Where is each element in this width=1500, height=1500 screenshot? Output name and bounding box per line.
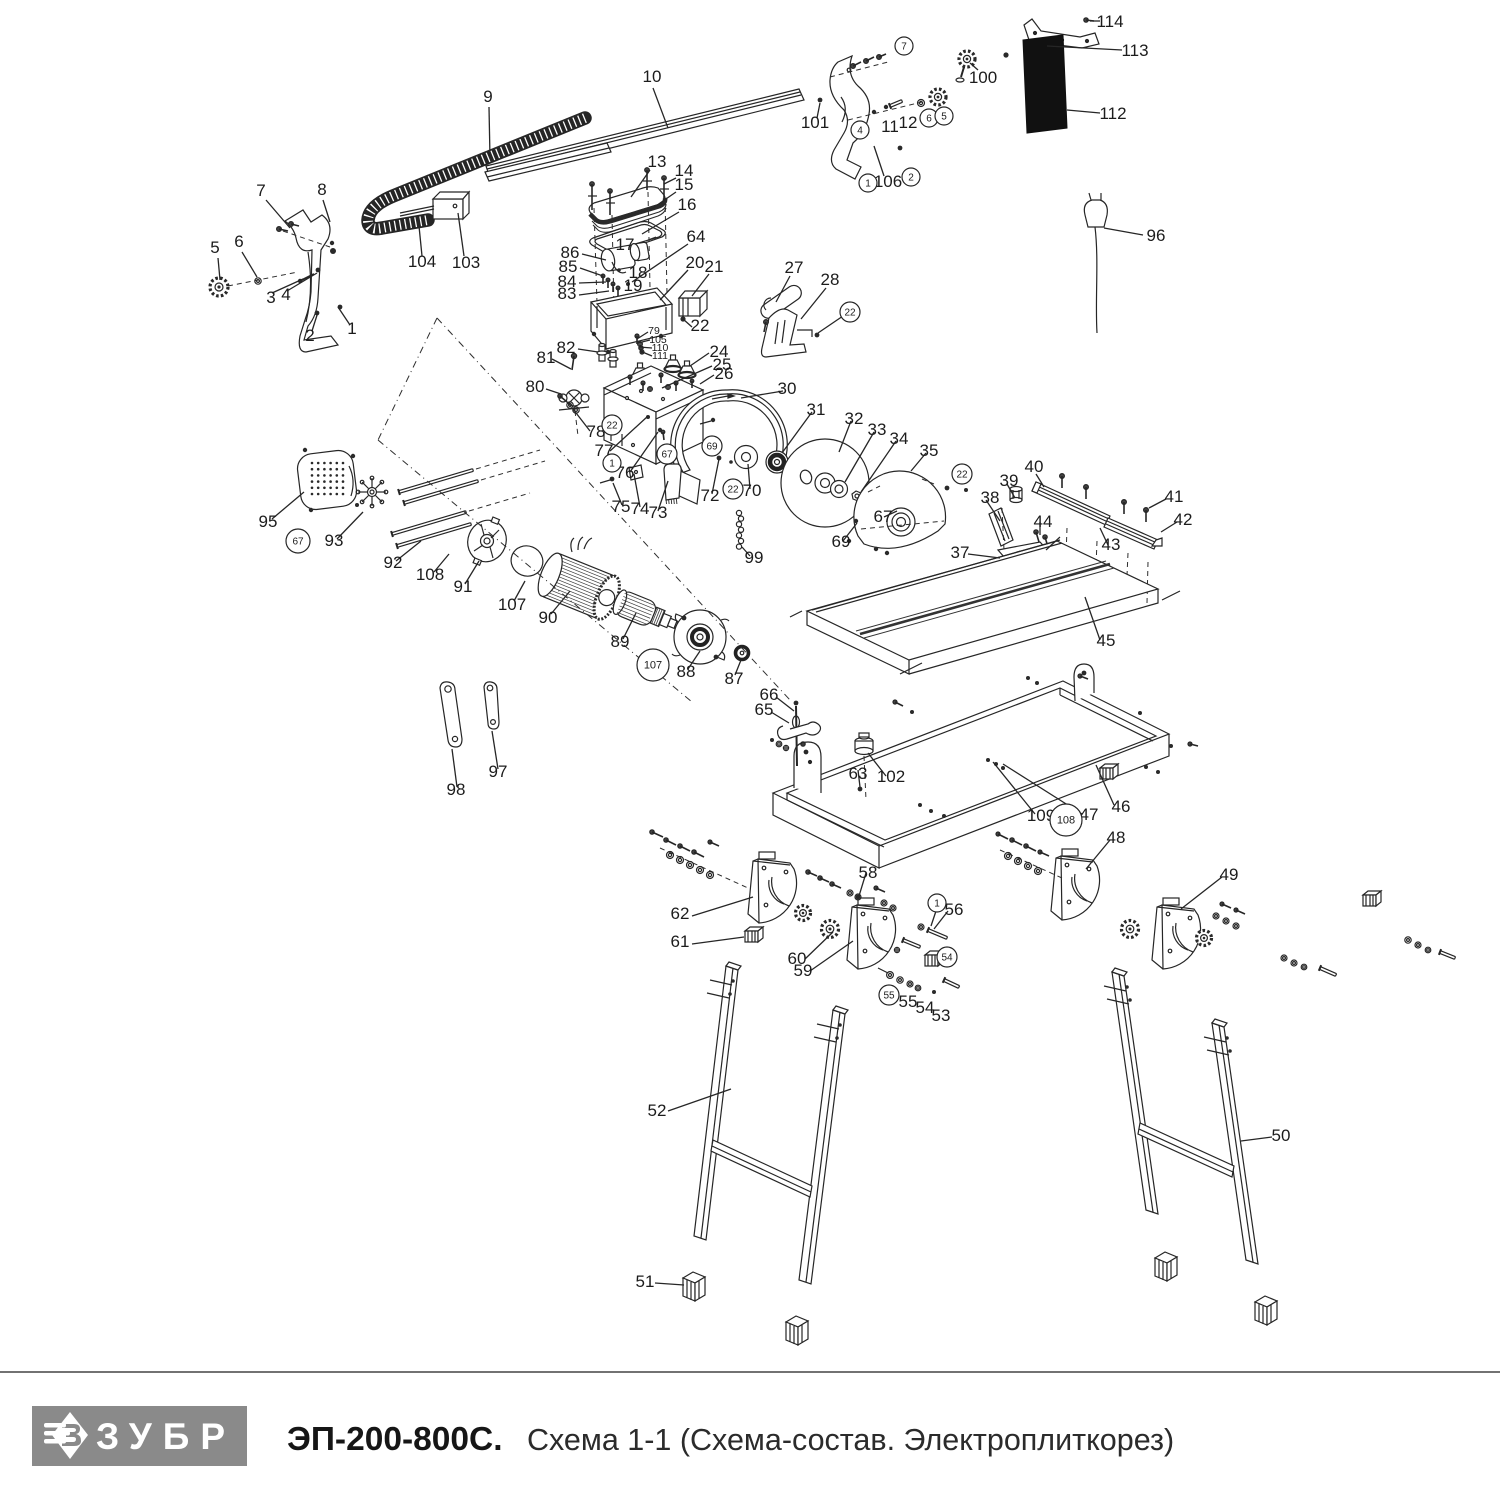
- svg-text:55: 55: [899, 992, 918, 1011]
- svg-text:67: 67: [874, 507, 893, 526]
- svg-text:17: 17: [616, 235, 635, 254]
- svg-text:114: 114: [1096, 12, 1123, 31]
- svg-text:46: 46: [1112, 797, 1131, 816]
- svg-text:43: 43: [1102, 535, 1121, 554]
- svg-text:58: 58: [859, 863, 878, 882]
- svg-text:107: 107: [644, 660, 662, 672]
- svg-text:103: 103: [452, 253, 480, 272]
- svg-text:74: 74: [631, 499, 650, 518]
- svg-text:87: 87: [725, 669, 744, 688]
- svg-text:69: 69: [706, 442, 718, 453]
- svg-text:49: 49: [1220, 865, 1239, 884]
- svg-text:97: 97: [489, 762, 508, 781]
- svg-text:39: 39: [1000, 471, 1019, 490]
- svg-text:95: 95: [259, 512, 278, 531]
- svg-text:90: 90: [539, 608, 558, 627]
- svg-text:13: 13: [648, 152, 667, 171]
- svg-text:ЭП-200-800С.: ЭП-200-800С.: [287, 1421, 503, 1458]
- svg-text:2: 2: [908, 173, 914, 184]
- svg-text:19: 19: [624, 276, 643, 295]
- svg-text:6: 6: [234, 232, 243, 251]
- svg-text:63: 63: [849, 764, 868, 783]
- svg-text:8: 8: [317, 180, 326, 199]
- svg-text:2: 2: [305, 326, 314, 345]
- svg-text:67: 67: [661, 450, 673, 461]
- svg-text:82: 82: [557, 338, 576, 357]
- svg-text:99: 99: [745, 548, 764, 567]
- svg-text:56: 56: [945, 900, 964, 919]
- svg-text:107: 107: [498, 595, 526, 614]
- svg-text:88: 88: [677, 662, 696, 681]
- svg-text:108: 108: [1057, 815, 1075, 827]
- svg-text:1: 1: [865, 179, 871, 190]
- svg-text:89: 89: [611, 632, 630, 651]
- svg-text:66: 66: [760, 685, 779, 704]
- svg-text:7: 7: [901, 42, 907, 53]
- svg-text:22: 22: [606, 421, 618, 432]
- svg-text:64: 64: [687, 227, 706, 246]
- svg-text:16: 16: [678, 195, 697, 214]
- svg-text:101: 101: [801, 113, 829, 132]
- svg-text:40: 40: [1025, 457, 1044, 476]
- svg-text:38: 38: [981, 488, 1000, 507]
- svg-text:31: 31: [807, 400, 826, 419]
- svg-text:45: 45: [1097, 631, 1116, 650]
- svg-text:113: 113: [1121, 41, 1148, 60]
- svg-text:72: 72: [701, 486, 720, 505]
- svg-text:42: 42: [1174, 510, 1193, 529]
- svg-text:27: 27: [785, 258, 804, 277]
- svg-text:ЗУБР: ЗУБР: [96, 1416, 236, 1457]
- svg-text:37: 37: [951, 543, 970, 562]
- svg-text:3: 3: [266, 288, 275, 307]
- svg-text:104: 104: [408, 252, 436, 271]
- svg-text:102: 102: [877, 767, 905, 786]
- svg-text:22: 22: [844, 308, 856, 319]
- svg-text:9: 9: [483, 87, 492, 106]
- svg-text:100: 100: [969, 68, 997, 87]
- svg-text:70: 70: [743, 481, 762, 500]
- svg-text:81: 81: [537, 348, 556, 367]
- svg-text:73: 73: [649, 503, 668, 522]
- svg-text:111: 111: [652, 350, 668, 362]
- svg-text:1: 1: [347, 319, 356, 338]
- svg-text:1: 1: [934, 899, 940, 910]
- svg-text:22: 22: [691, 316, 710, 335]
- svg-text:67: 67: [292, 537, 304, 548]
- svg-text:5: 5: [210, 238, 219, 257]
- svg-text:35: 35: [920, 441, 939, 460]
- svg-text:34: 34: [890, 429, 909, 448]
- svg-text:30: 30: [778, 379, 797, 398]
- svg-text:22: 22: [956, 470, 968, 481]
- svg-text:12: 12: [899, 113, 918, 132]
- svg-text:20: 20: [686, 253, 705, 272]
- svg-text:33: 33: [868, 420, 887, 439]
- svg-text:4: 4: [281, 285, 290, 304]
- svg-text:61: 61: [671, 932, 690, 951]
- svg-text:1: 1: [609, 459, 615, 470]
- svg-text:106: 106: [874, 172, 902, 191]
- svg-text:96: 96: [1147, 226, 1166, 245]
- svg-text:60: 60: [788, 949, 807, 968]
- svg-text:Схема 1-1 (Схема-состав. Элект: Схема 1-1 (Схема-состав. Электроплиткоре…: [527, 1423, 1174, 1457]
- svg-text:62: 62: [671, 904, 690, 923]
- svg-text:75: 75: [612, 497, 631, 516]
- svg-text:15: 15: [675, 175, 694, 194]
- svg-text:54: 54: [941, 953, 953, 964]
- svg-text:5: 5: [941, 112, 947, 123]
- svg-text:6: 6: [926, 114, 932, 125]
- svg-text:22: 22: [727, 485, 739, 496]
- svg-text:21: 21: [705, 257, 724, 276]
- svg-text:91: 91: [454, 577, 473, 596]
- svg-text:11: 11: [881, 117, 899, 136]
- svg-text:4: 4: [857, 126, 863, 137]
- svg-text:55: 55: [883, 991, 895, 1002]
- svg-text:50: 50: [1272, 1126, 1291, 1145]
- svg-text:86: 86: [561, 243, 580, 262]
- svg-text:41: 41: [1165, 487, 1184, 506]
- svg-text:80: 80: [526, 377, 545, 396]
- svg-text:51: 51: [636, 1272, 655, 1291]
- svg-text:28: 28: [821, 270, 840, 289]
- svg-text:92: 92: [384, 553, 403, 572]
- svg-text:54: 54: [916, 998, 935, 1017]
- svg-text:7: 7: [256, 181, 265, 200]
- svg-text:108: 108: [416, 565, 444, 584]
- svg-text:44: 44: [1034, 512, 1053, 531]
- svg-text:98: 98: [447, 780, 466, 799]
- svg-text:10: 10: [643, 67, 662, 86]
- svg-text:48: 48: [1107, 828, 1126, 847]
- svg-text:69: 69: [832, 532, 851, 551]
- svg-text:52: 52: [648, 1101, 667, 1120]
- svg-text:93: 93: [325, 531, 344, 550]
- svg-text:112: 112: [1099, 104, 1126, 123]
- svg-text:32: 32: [845, 409, 864, 428]
- svg-text:26: 26: [715, 364, 734, 383]
